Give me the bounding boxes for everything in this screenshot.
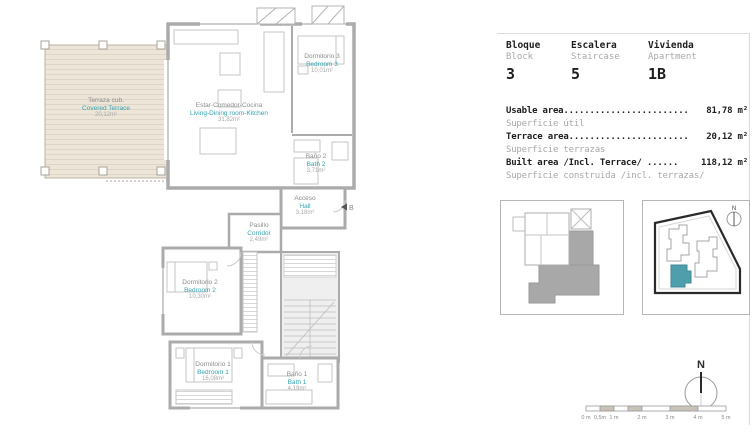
area-label: Terrace area....................... [506,131,689,144]
scale-tick-label: 4 m [693,415,703,421]
area-value: 118,12 m² [701,157,748,170]
field-value: 1B [648,65,697,83]
field-apartment: Vivienda Apartment 1B [648,40,697,83]
terrace-area-sub: Superficie terrazas [506,144,748,157]
usable-area-sub: Superficie útil [506,118,748,131]
covered-terrace [41,41,168,181]
field-value: 3 [506,65,571,83]
scale-tick-label: 2 m [637,415,647,421]
scale-tick-label: 0 m [581,415,591,421]
floor-keyplan-drawing [501,201,623,314]
terrace-area-row: Terrace area....................... 20,1… [506,131,748,144]
field-sublabel: Block [506,52,571,62]
floorplan-sheet: B Terraza cub. Covered Terrace 20,12m² E… [0,0,756,432]
built-area-row: Built area /Incl. Terrace/ ...... 118,12… [506,157,748,170]
built-area-sub: Superficie construida /incl. terrazas/ [506,170,748,183]
unit-info-panel: Bloque Block 3 Escalera Staircase 5 Vivi… [506,40,748,183]
field-block: Bloque Block 3 [506,40,571,83]
field-label: Bloque [506,40,571,51]
area-label: Built area /Incl. Terrace/ ...... [506,157,678,170]
area-value: 20,12 m² [706,131,748,144]
floorplan-drawing: B [0,0,490,432]
field-label: Vivienda [648,40,697,51]
north-label: N [697,359,705,371]
site-keyplan: N [642,200,750,315]
entrance-label: B [349,205,354,212]
floor-keyplan [500,200,624,315]
unit-header: Bloque Block 3 Escalera Staircase 5 Vivi… [506,40,748,83]
area-label: Usable area........................ [506,105,689,118]
site-compass: N [727,206,741,226]
site-keyplan-drawing: N [643,201,749,314]
field-staircase: Escalera Staircase 5 [571,40,648,83]
field-sublabel: Staircase [571,52,648,62]
current-block-highlight [671,265,691,287]
north-label: N [732,206,736,212]
roof-ledges [257,6,344,24]
scale-tick-label: 0,5m [594,415,607,421]
field-value: 5 [571,65,648,83]
stairwell-block [281,252,339,362]
scale-bar: 0 m 0,5m 1 m 2 m 3 m 4 m 5 m [578,402,754,428]
scale-labels: 0 m 0,5m 1 m 2 m 3 m 4 m 5 m [581,415,731,421]
area-summary: Usable area........................ 81,7… [506,105,748,183]
field-sublabel: Apartment [648,52,697,62]
usable-area-row: Usable area........................ 81,7… [506,105,748,118]
scale-tick-label: 3 m [665,415,675,421]
scale-tick-label: 5 m [721,415,731,421]
field-label: Escalera [571,40,648,51]
panel-top-divider [497,33,750,34]
area-value: 81,78 m² [706,105,748,118]
scale-tick-label: 1 m [609,415,619,421]
